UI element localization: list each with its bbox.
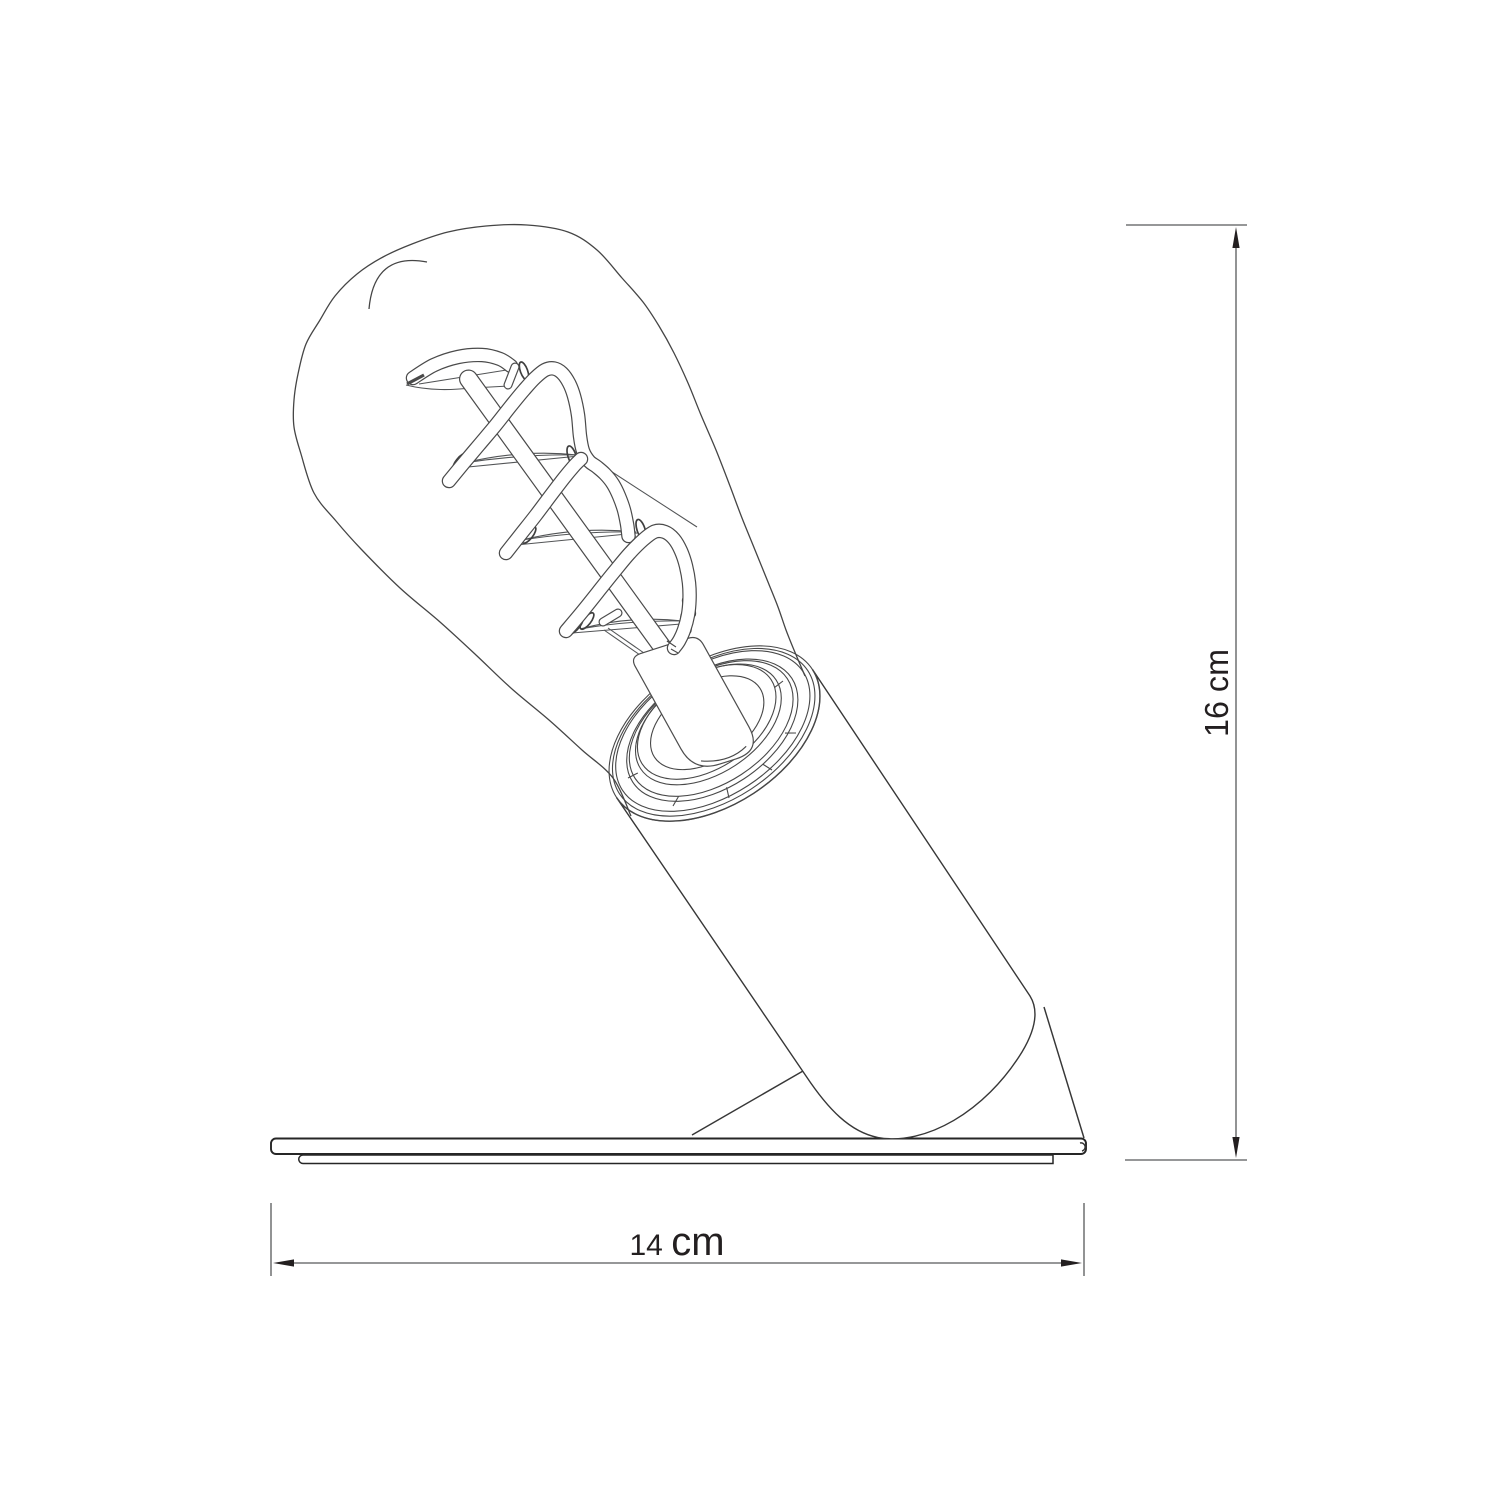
svg-text:16 cm: 16 cm bbox=[1198, 649, 1235, 737]
svg-text:14 cm: 14 cm bbox=[629, 1220, 724, 1264]
